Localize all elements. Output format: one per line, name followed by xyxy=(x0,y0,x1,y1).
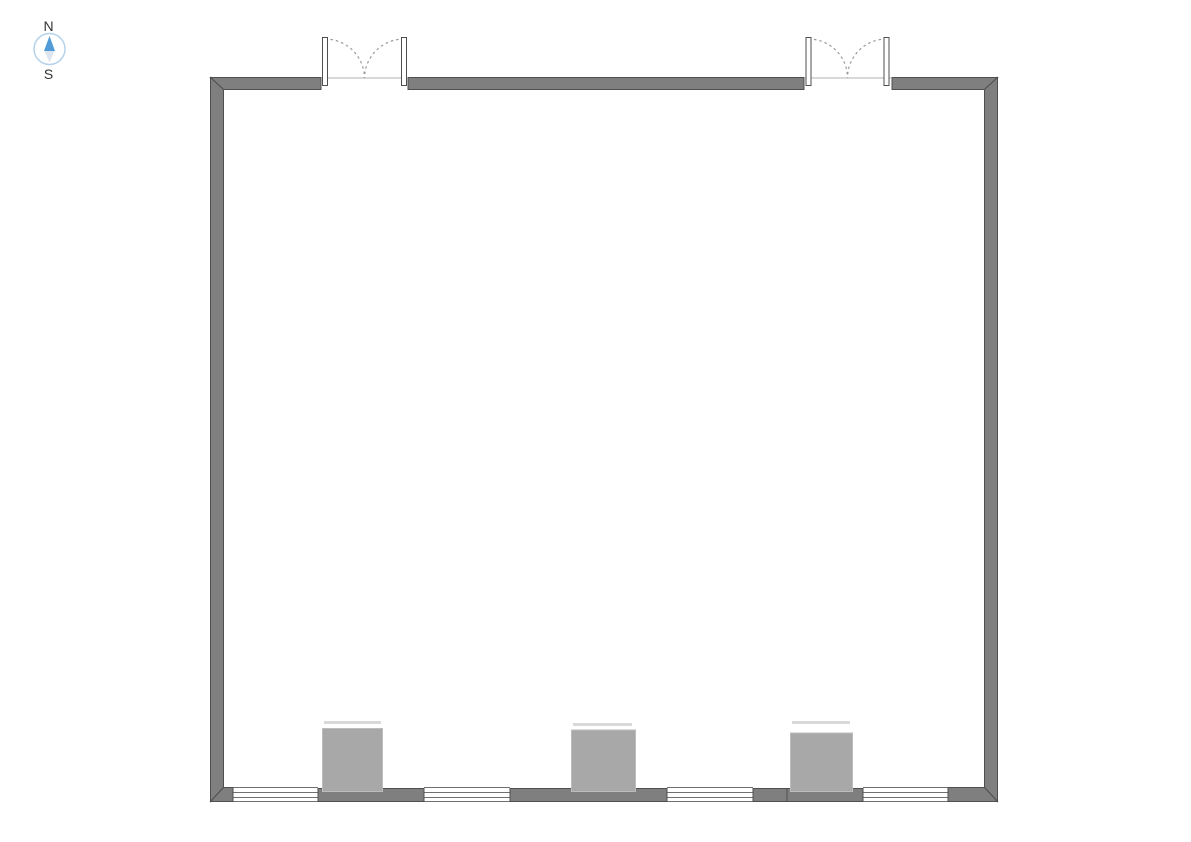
window-south-2[interactable] xyxy=(424,787,510,802)
double-door-west[interactable] xyxy=(321,38,408,86)
window-south-3[interactable] xyxy=(667,787,753,802)
door-swing-arc-left xyxy=(325,39,365,79)
door-leaf-left[interactable] xyxy=(323,38,328,86)
pier-top-shadow xyxy=(792,721,850,724)
pier-south-2[interactable] xyxy=(572,723,636,792)
pier-top-shadow xyxy=(324,721,381,724)
pier-body[interactable] xyxy=(572,730,636,792)
floor-plan-drawing: N S xyxy=(0,0,1191,842)
door-leaf-right[interactable] xyxy=(402,38,407,86)
pier-body[interactable] xyxy=(791,733,853,792)
window-south-1[interactable] xyxy=(233,787,318,802)
wall-south-segment-3[interactable] xyxy=(753,789,787,802)
window-pane xyxy=(233,787,318,802)
door-swing-arc-right xyxy=(365,39,405,79)
pier-south-1[interactable] xyxy=(323,721,383,792)
wall-west[interactable] xyxy=(211,78,224,802)
door-leaf-right[interactable] xyxy=(884,38,889,86)
wall-east[interactable] xyxy=(985,78,998,802)
wall-north-right-segment[interactable] xyxy=(892,78,998,90)
floor-plan-page: N S xyxy=(0,0,1191,842)
walls[interactable] xyxy=(211,78,998,802)
wall-north-left-segment[interactable] xyxy=(211,78,322,90)
door-swing-arc-right xyxy=(848,39,887,78)
wall-north-middle-segment[interactable] xyxy=(408,78,804,90)
door-leaf-left[interactable] xyxy=(806,38,811,86)
compass-rose[interactable]: N S xyxy=(34,18,65,82)
compass-north-label: N xyxy=(43,18,53,34)
window-pane xyxy=(863,787,948,802)
compass-south-label: S xyxy=(44,66,53,82)
pier-top-shadow xyxy=(573,723,632,726)
pier-body[interactable] xyxy=(323,729,383,792)
door-swing-arc-left xyxy=(809,39,848,78)
window-south-4[interactable] xyxy=(863,787,948,802)
window-pane xyxy=(424,787,510,802)
double-door-east[interactable] xyxy=(804,38,891,86)
pier-south-3[interactable] xyxy=(791,721,853,792)
window-pane xyxy=(667,787,753,802)
